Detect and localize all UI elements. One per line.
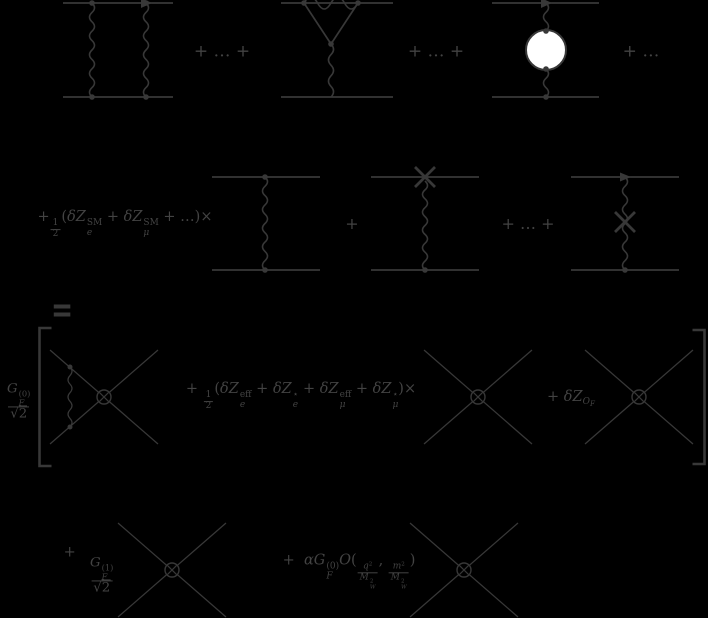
vertex-dot (262, 174, 268, 180)
vertex-dot (301, 0, 307, 6)
feynman-diagrams-canvas (0, 0, 708, 618)
boson-propagator (423, 181, 428, 270)
vertex-dot (543, 28, 549, 34)
vertex-dot (89, 94, 95, 100)
vertex-dot (68, 365, 73, 370)
vertex-dot (89, 0, 95, 6)
photon-propagator (68, 367, 72, 427)
vertex-dot (328, 41, 334, 47)
boson-propagator (144, 3, 149, 97)
plus-dots-row1-c: + … (623, 44, 660, 61)
box-diagram (63, 0, 173, 100)
plus-dots-row1-b: + … + (408, 44, 464, 61)
boson-propagator (263, 177, 268, 270)
vertex-dot (68, 425, 73, 430)
internal-fermion-line (304, 3, 331, 44)
wavefunction-renorm-expression: + 12(δZeffe + δZ⋆e + δZeffμ + δZ⋆μ)× (186, 382, 416, 412)
arrowhead-icon (541, 0, 552, 8)
boson-propagator (544, 3, 549, 31)
alpha-order-expression: + αG(0)FO(q2M2W, m2M2W) (283, 553, 416, 590)
vertex-dot (543, 66, 549, 72)
plus-dots-row2: + … + (502, 216, 555, 232)
vertex-dot (622, 267, 628, 273)
vertex-dot (422, 267, 428, 273)
contact-diagram-tree-4 (118, 523, 226, 617)
photon-loop-arc (304, 0, 358, 9)
self-energy-blob-diagram (492, 0, 599, 100)
plus-row2: + (345, 216, 358, 232)
contact-diagram-tree-2 (424, 350, 532, 444)
bracket-left (40, 328, 52, 466)
vertex-dot (262, 267, 268, 273)
gf0-prefactor: G(0)F√2 (2, 371, 35, 422)
vertex-counterterm-diagram (371, 167, 479, 273)
blob-icon (526, 30, 566, 70)
vertex-dot (543, 94, 549, 100)
boson-propagator (329, 44, 334, 97)
tree-exchange-diagram (212, 174, 320, 273)
contact-diagram-tree-5 (410, 523, 518, 617)
contact-diagram-tree-3 (585, 350, 693, 444)
vertex-dot (355, 0, 361, 6)
vertex-correction-diagram (281, 0, 393, 97)
row2-prefactor-expression: +12(δZSMe + δZSMμ + …)× (38, 210, 213, 240)
arrowhead-icon (141, 0, 152, 8)
boson-propagator (544, 69, 549, 97)
arrowhead-icon (620, 173, 631, 182)
internal-fermion-line (331, 3, 358, 44)
feynman-matching-figure: + … + + … + + … +12(δZSMe + δZSMμ + …)× … (0, 0, 708, 618)
operator-counterterm-expression: + δZOF (547, 390, 595, 405)
contact-diagram-photon-exchange (50, 350, 158, 444)
propagator-counterterm-diagram (571, 173, 679, 273)
gf1-term-expression: + G(1)F√2 (64, 545, 119, 596)
equals-sign: = (51, 292, 73, 328)
boson-propagator (90, 3, 95, 97)
plus-dots-row1-a: + … + (194, 44, 250, 61)
vertex-dot (143, 94, 149, 100)
bracket-right (693, 330, 705, 464)
